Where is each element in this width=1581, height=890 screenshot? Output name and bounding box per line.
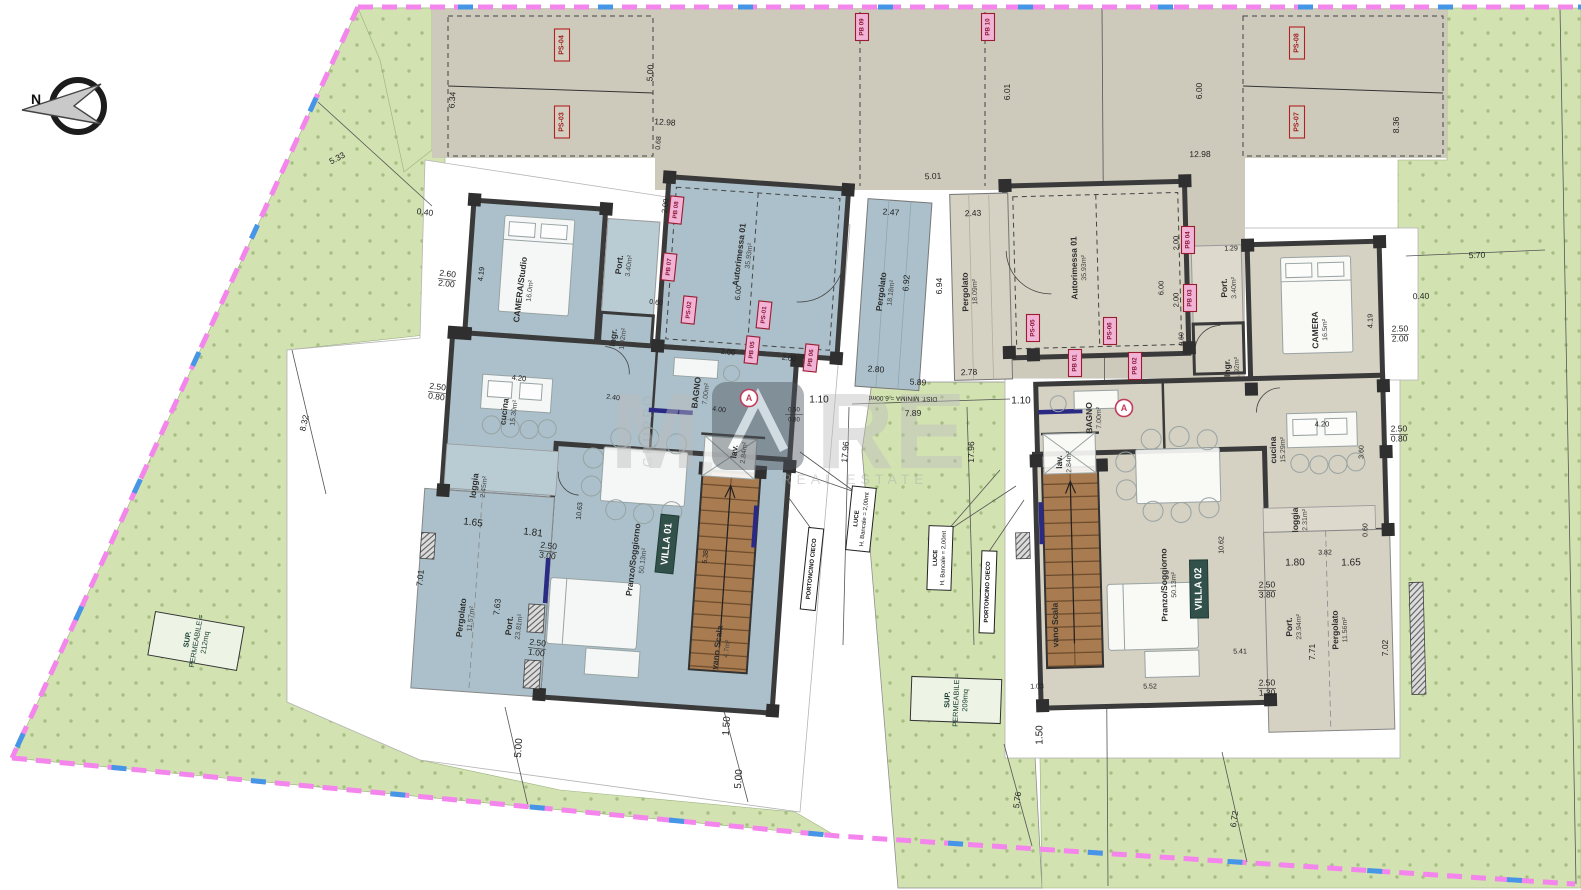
- svg-text:1.10: 1.10: [1011, 396, 1031, 407]
- svg-text:PB 03: PB 03: [1187, 289, 1194, 307]
- svg-text:Port.: Port.: [1219, 278, 1229, 298]
- dimension-label: 10.62: [1219, 536, 1226, 554]
- room-label-ingr: Ingr.1.92m²: [1222, 356, 1241, 379]
- dimension-label: 2.500.80: [1390, 423, 1408, 443]
- dimension-label: 0.40: [1413, 291, 1430, 302]
- svg-text:1.00: 1.00: [528, 646, 546, 658]
- svg-text:5.38: 5.38: [702, 550, 710, 564]
- svg-text:Autorimessa 01: Autorimessa 01: [1068, 236, 1079, 300]
- svg-text:1.80: 1.80: [1285, 557, 1305, 568]
- dimension-label: 5.01: [924, 171, 941, 182]
- svg-text:1.65: 1.65: [1341, 557, 1361, 568]
- svg-text:6.00: 6.00: [733, 285, 743, 300]
- parking-space-label-ps-01: PS-01: [756, 301, 772, 329]
- dimension-label: 2.78: [961, 367, 978, 378]
- svg-text:0.80: 0.80: [1391, 433, 1408, 443]
- svg-text:2.43: 2.43: [965, 208, 982, 219]
- dimension-label: 17.96: [966, 441, 976, 463]
- svg-text:2.50: 2.50: [1259, 579, 1276, 589]
- dimension-label: 7.89: [905, 408, 922, 419]
- svg-text:Pergolato: Pergolato: [960, 272, 971, 311]
- dimension-label: 5.89: [909, 376, 926, 387]
- watermark-m: M: [610, 370, 700, 491]
- svg-text:7.02: 7.02: [1380, 639, 1390, 656]
- svg-text:2.50: 2.50: [1392, 323, 1409, 333]
- svg-text:4.19: 4.19: [1366, 314, 1375, 329]
- dimension-label: 2.00: [781, 353, 797, 364]
- svg-text:2.50: 2.50: [1391, 423, 1408, 433]
- svg-text:0.60: 0.60: [1178, 332, 1185, 346]
- parking-space-label-ps-06: PS-06: [1104, 318, 1117, 345]
- circled-symbol-a: A: [741, 390, 758, 407]
- svg-text:4.20: 4.20: [1315, 419, 1330, 428]
- dimension-label: 2.502.00: [1391, 323, 1409, 343]
- svg-text:VILLA 02: VILLA 02: [1193, 567, 1205, 610]
- dimension-label: 7.02: [1380, 639, 1390, 656]
- svg-text:DIST. MINIMA = 6.00mt: DIST. MINIMA = 6.00mt: [869, 394, 937, 402]
- dimension-label: 0.60: [1363, 523, 1370, 537]
- svg-text:6.92: 6.92: [900, 274, 911, 292]
- watermark-gruppo: GRUPPO: [640, 393, 655, 467]
- site-plan-page: M RE GRUPPO REAL ESTATE CAMERA/Studio16.…: [0, 0, 1581, 890]
- svg-text:0.40: 0.40: [1413, 291, 1430, 302]
- dimension-label: DIST. MINIMA = 6.00mt: [869, 394, 937, 402]
- svg-text:11.56m²: 11.56m²: [1342, 617, 1349, 643]
- svg-text:4.20: 4.20: [511, 373, 527, 384]
- svg-text:PB 09: PB 09: [859, 18, 866, 36]
- parking-space-label-pb-07: PB 07: [661, 253, 677, 281]
- dimension-label: 5.00: [513, 737, 525, 758]
- dimension-label: 17.96: [839, 441, 851, 463]
- svg-text:4.19: 4.19: [476, 266, 487, 282]
- svg-text:209mq: 209mq: [960, 689, 970, 712]
- dimension-label: 1.50: [721, 715, 733, 736]
- svg-text:0.80: 0.80: [788, 418, 800, 424]
- dimension-label: 2.503.80: [1258, 579, 1276, 599]
- circled-symbol-a: A: [1116, 400, 1133, 417]
- svg-text:1.50: 1.50: [721, 715, 733, 736]
- svg-text:3.82: 3.82: [1318, 549, 1332, 556]
- svg-text:PB 10: PB 10: [985, 18, 992, 36]
- dimension-label: 2.503.00: [538, 539, 558, 561]
- svg-text:2.00: 2.00: [781, 353, 797, 364]
- svg-text:17.96: 17.96: [966, 441, 976, 463]
- watermark-real-estate: REAL ESTATE: [781, 471, 928, 487]
- parking-space-label-pb-09: PB 09: [856, 14, 869, 41]
- dimension-label: 2.500.80: [427, 380, 447, 402]
- dining-table: [1135, 447, 1220, 503]
- dimension-label: 12.98: [654, 116, 676, 127]
- dimension-label: 5.00: [644, 64, 655, 81]
- svg-text:3.40m²: 3.40m²: [1231, 276, 1238, 299]
- svg-text:6.01: 6.01: [1002, 83, 1012, 100]
- parking-space-label-pb-05: PB 05: [744, 336, 760, 364]
- svg-text:lav.: lav.: [1054, 455, 1064, 469]
- dimension-label: 3.60: [1358, 445, 1365, 459]
- svg-text:0.60: 0.60: [1363, 523, 1370, 537]
- svg-text:1.92m²: 1.92m²: [1234, 356, 1241, 379]
- dimension-label: 2.501.00: [527, 636, 547, 658]
- svg-text:2.00: 2.00: [1171, 236, 1180, 251]
- dimension-label: 12.98: [1189, 149, 1211, 159]
- svg-text:2.31m²: 2.31m²: [1302, 508, 1309, 531]
- svg-text:0.68: 0.68: [655, 136, 663, 150]
- dimension-label: 0.40: [416, 206, 434, 218]
- parking-space-label-ps-07: PS-07: [1290, 106, 1305, 138]
- dimension-label: 6.01: [1002, 83, 1012, 100]
- svg-text:6.00: 6.00: [1194, 82, 1204, 99]
- dimension-label: 2.80: [867, 363, 884, 374]
- dimension-label: 8.36: [1391, 116, 1401, 133]
- room-label-loggia: loggia2.31m²: [1290, 507, 1309, 533]
- svg-text:A: A: [1121, 403, 1128, 413]
- dimension-label: 2.47: [882, 206, 899, 217]
- svg-text:Pranzo/Soggiorno: Pranzo/Soggiorno: [1158, 548, 1169, 621]
- parking-space-label-pb-04: PB 04: [1182, 227, 1195, 254]
- svg-text:6.94: 6.94: [934, 277, 944, 294]
- svg-text:15.29m²: 15.29m²: [1280, 436, 1287, 462]
- svg-text:5.00: 5.00: [513, 737, 525, 758]
- svg-text:1.10: 1.10: [809, 395, 829, 406]
- annotation-box-portoncino-cieco: PORTONCINO CIECO: [979, 551, 997, 633]
- svg-text:5.01: 5.01: [924, 171, 941, 182]
- dimension-label: 2.43: [965, 208, 982, 219]
- floor-plan-drawing: M RE GRUPPO REAL ESTATE CAMERA/Studio16.…: [0, 0, 1581, 890]
- dimension-label: 7.71: [1307, 643, 1317, 660]
- dimension-label: 5.52: [1143, 683, 1157, 690]
- svg-text:PS-04: PS-04: [559, 35, 566, 55]
- parking-space-label-ps-02: PS-02: [681, 296, 697, 324]
- svg-text:7.01: 7.01: [414, 569, 426, 587]
- svg-text:3.60: 3.60: [1358, 445, 1365, 459]
- svg-text:6.00: 6.00: [1157, 281, 1166, 296]
- svg-text:10.62: 10.62: [1219, 536, 1226, 554]
- parking-space-label-pb-10: PB 10: [982, 14, 995, 41]
- svg-text:lav.: lav.: [728, 444, 740, 459]
- parking-space-label-pb-03: PB 03: [1184, 285, 1197, 312]
- svg-text:PS-03: PS-03: [559, 112, 566, 132]
- svg-text:2.00: 2.00: [1171, 293, 1180, 308]
- parking-space-label-ps-04: PS-04: [555, 29, 570, 61]
- svg-text:18.09m²: 18.09m²: [972, 278, 979, 304]
- svg-text:5.00: 5.00: [644, 64, 655, 81]
- villa-01-loggia: [444, 444, 559, 496]
- parking-space-label-pb-02: PB 02: [1129, 353, 1142, 380]
- svg-text:2.80: 2.80: [867, 363, 884, 374]
- dimension-label: 3.82: [1318, 549, 1332, 556]
- svg-text:35.93m²: 35.93m²: [1081, 254, 1088, 280]
- svg-text:16.5m²: 16.5m²: [1322, 318, 1329, 341]
- parking-space-label-ps-08: PS-08: [1290, 27, 1305, 59]
- svg-text:A: A: [746, 393, 753, 403]
- dimension-label: 5.41: [1233, 648, 1247, 655]
- dimension-label: 6.00: [1157, 281, 1166, 296]
- svg-text:Ingr.: Ingr.: [1222, 359, 1232, 377]
- svg-text:5.52: 5.52: [1143, 683, 1157, 690]
- dimension-label: 1.10: [809, 395, 829, 406]
- svg-text:0.40: 0.40: [416, 206, 434, 218]
- svg-text:5.41: 5.41: [1233, 648, 1247, 655]
- dimension-label: 1.50: [1035, 725, 1046, 745]
- svg-text:5.00: 5.00: [733, 768, 745, 789]
- dimension-label: 7.01: [414, 569, 426, 587]
- dimension-label: 1.65: [1341, 557, 1361, 568]
- svg-text:8.36: 8.36: [1391, 116, 1401, 133]
- svg-text:BAGNO: BAGNO: [1084, 402, 1095, 434]
- svg-text:3.00: 3.00: [539, 549, 557, 561]
- dimension-label: 4.20: [1315, 419, 1330, 428]
- bathroom-sink: [1074, 390, 1118, 409]
- dimension-label: 5.70: [1469, 250, 1486, 261]
- parking-space-label-pb-01: PB 01: [1069, 350, 1082, 377]
- dimension-label: 1.03: [1030, 683, 1044, 690]
- dimension-label: 1.80: [1285, 557, 1305, 568]
- dimension-label: 2.602.00: [437, 267, 457, 289]
- dimension-label: 6.92: [900, 274, 911, 292]
- svg-text:2.00: 2.00: [660, 198, 671, 214]
- svg-text:7.00m²: 7.00m²: [1096, 406, 1103, 429]
- svg-text:PB 01: PB 01: [1072, 354, 1079, 372]
- dimension-label: 5.38: [702, 550, 710, 564]
- dimension-label: 6.94: [934, 277, 944, 294]
- dimension-label: 2.00: [1171, 236, 1180, 251]
- dimension-label: 2.00: [1171, 293, 1180, 308]
- dimension-label: 5.00: [733, 768, 745, 789]
- annotation-box-luce: LUCEH. Bancale = 2,00mt: [927, 526, 953, 591]
- dimension-label: 4.20: [511, 373, 527, 384]
- svg-text:1.50: 1.50: [1035, 725, 1046, 745]
- svg-text:50.13m²: 50.13m²: [1171, 571, 1178, 597]
- svg-text:PS-06: PS-06: [1107, 322, 1114, 340]
- svg-text:cucina: cucina: [1268, 436, 1278, 463]
- svg-text:2.00: 2.00: [438, 277, 456, 289]
- svg-text:12.98: 12.98: [654, 116, 676, 127]
- parking-space-label-ps-03: PS-03: [555, 106, 570, 138]
- svg-text:2.00: 2.00: [1392, 333, 1409, 343]
- dimension-label: 0.60: [1178, 332, 1185, 346]
- dimension-label: 1.10: [1011, 396, 1031, 407]
- svg-text:1.03: 1.03: [1030, 683, 1044, 690]
- room-label-port: Port.3.40m²: [1219, 276, 1238, 299]
- svg-text:CAMERA: CAMERA: [1310, 311, 1321, 348]
- sofa: [1107, 582, 1199, 650]
- svg-text:Port.: Port.: [1284, 617, 1294, 637]
- svg-text:1.30: 1.30: [1259, 687, 1276, 697]
- dimension-label: 2.00: [720, 347, 736, 358]
- annotation-box-sup: SUP.PERMEABILE =209mq: [910, 672, 1002, 729]
- svg-text:vano Scala: vano Scala: [1050, 602, 1061, 647]
- svg-text:3.80: 3.80: [1259, 589, 1276, 599]
- parking-space-label-pb-06: PB 06: [803, 344, 819, 372]
- svg-text:0.80: 0.80: [428, 390, 446, 402]
- svg-text:1.29: 1.29: [1224, 245, 1238, 252]
- svg-text:PB 02: PB 02: [1132, 357, 1139, 375]
- parking-space-label-ps-05: PS-05: [1027, 315, 1040, 342]
- dimension-label: 4.19: [1366, 314, 1375, 329]
- dimension-label: 2.00: [660, 198, 671, 214]
- watermark: M RE GRUPPO REAL ESTATE: [610, 370, 966, 491]
- svg-text:2.47: 2.47: [882, 206, 899, 217]
- svg-text:loggia: loggia: [1290, 507, 1300, 532]
- svg-text:0.50: 0.50: [788, 408, 800, 414]
- compass-north-label: N: [31, 91, 41, 107]
- svg-text:2.84m²: 2.84m²: [1066, 450, 1073, 473]
- svg-text:Pergolato: Pergolato: [1330, 610, 1341, 649]
- dimension-label: 0.68: [655, 136, 663, 150]
- dimension-label: 6.34: [446, 91, 457, 108]
- svg-text:PS-07: PS-07: [1294, 112, 1301, 132]
- svg-text:7.89: 7.89: [905, 408, 922, 419]
- room-label-vano-scala: vano Scala: [1050, 602, 1061, 647]
- dimension-label: 4.19: [476, 266, 487, 282]
- parking-space-label-pb-08: PB 08: [668, 196, 684, 224]
- svg-text:2.00: 2.00: [720, 347, 736, 358]
- svg-text:PS-05: PS-05: [1030, 319, 1037, 337]
- svg-text:PS-08: PS-08: [1294, 33, 1301, 53]
- svg-text:2.50: 2.50: [1259, 677, 1276, 687]
- dimension-label: 2.501.30: [1258, 677, 1276, 697]
- svg-text:PB 04: PB 04: [1185, 231, 1192, 249]
- svg-text:2.78: 2.78: [961, 367, 978, 378]
- svg-text:LUCE: LUCE: [933, 550, 940, 567]
- svg-text:12.98: 12.98: [1189, 149, 1211, 159]
- svg-text:5.89: 5.89: [909, 376, 926, 387]
- svg-text:7.71: 7.71: [1307, 643, 1317, 660]
- svg-text:7.63: 7.63: [491, 598, 503, 616]
- dimension-label: 6.00: [1194, 82, 1204, 99]
- svg-text:17.96: 17.96: [839, 441, 851, 463]
- room-label-cucina: cucina15.29m²: [1268, 436, 1287, 464]
- svg-text:5.70: 5.70: [1469, 250, 1486, 261]
- dimension-label: 6.00: [733, 285, 743, 300]
- villa-badge-villa-02: VILLA 02: [1189, 560, 1208, 618]
- svg-text:23.94m²: 23.94m²: [1296, 613, 1303, 639]
- dimension-label: 1.29: [1224, 245, 1238, 252]
- dimension-label: 7.63: [491, 598, 503, 616]
- svg-text:6.34: 6.34: [446, 91, 457, 108]
